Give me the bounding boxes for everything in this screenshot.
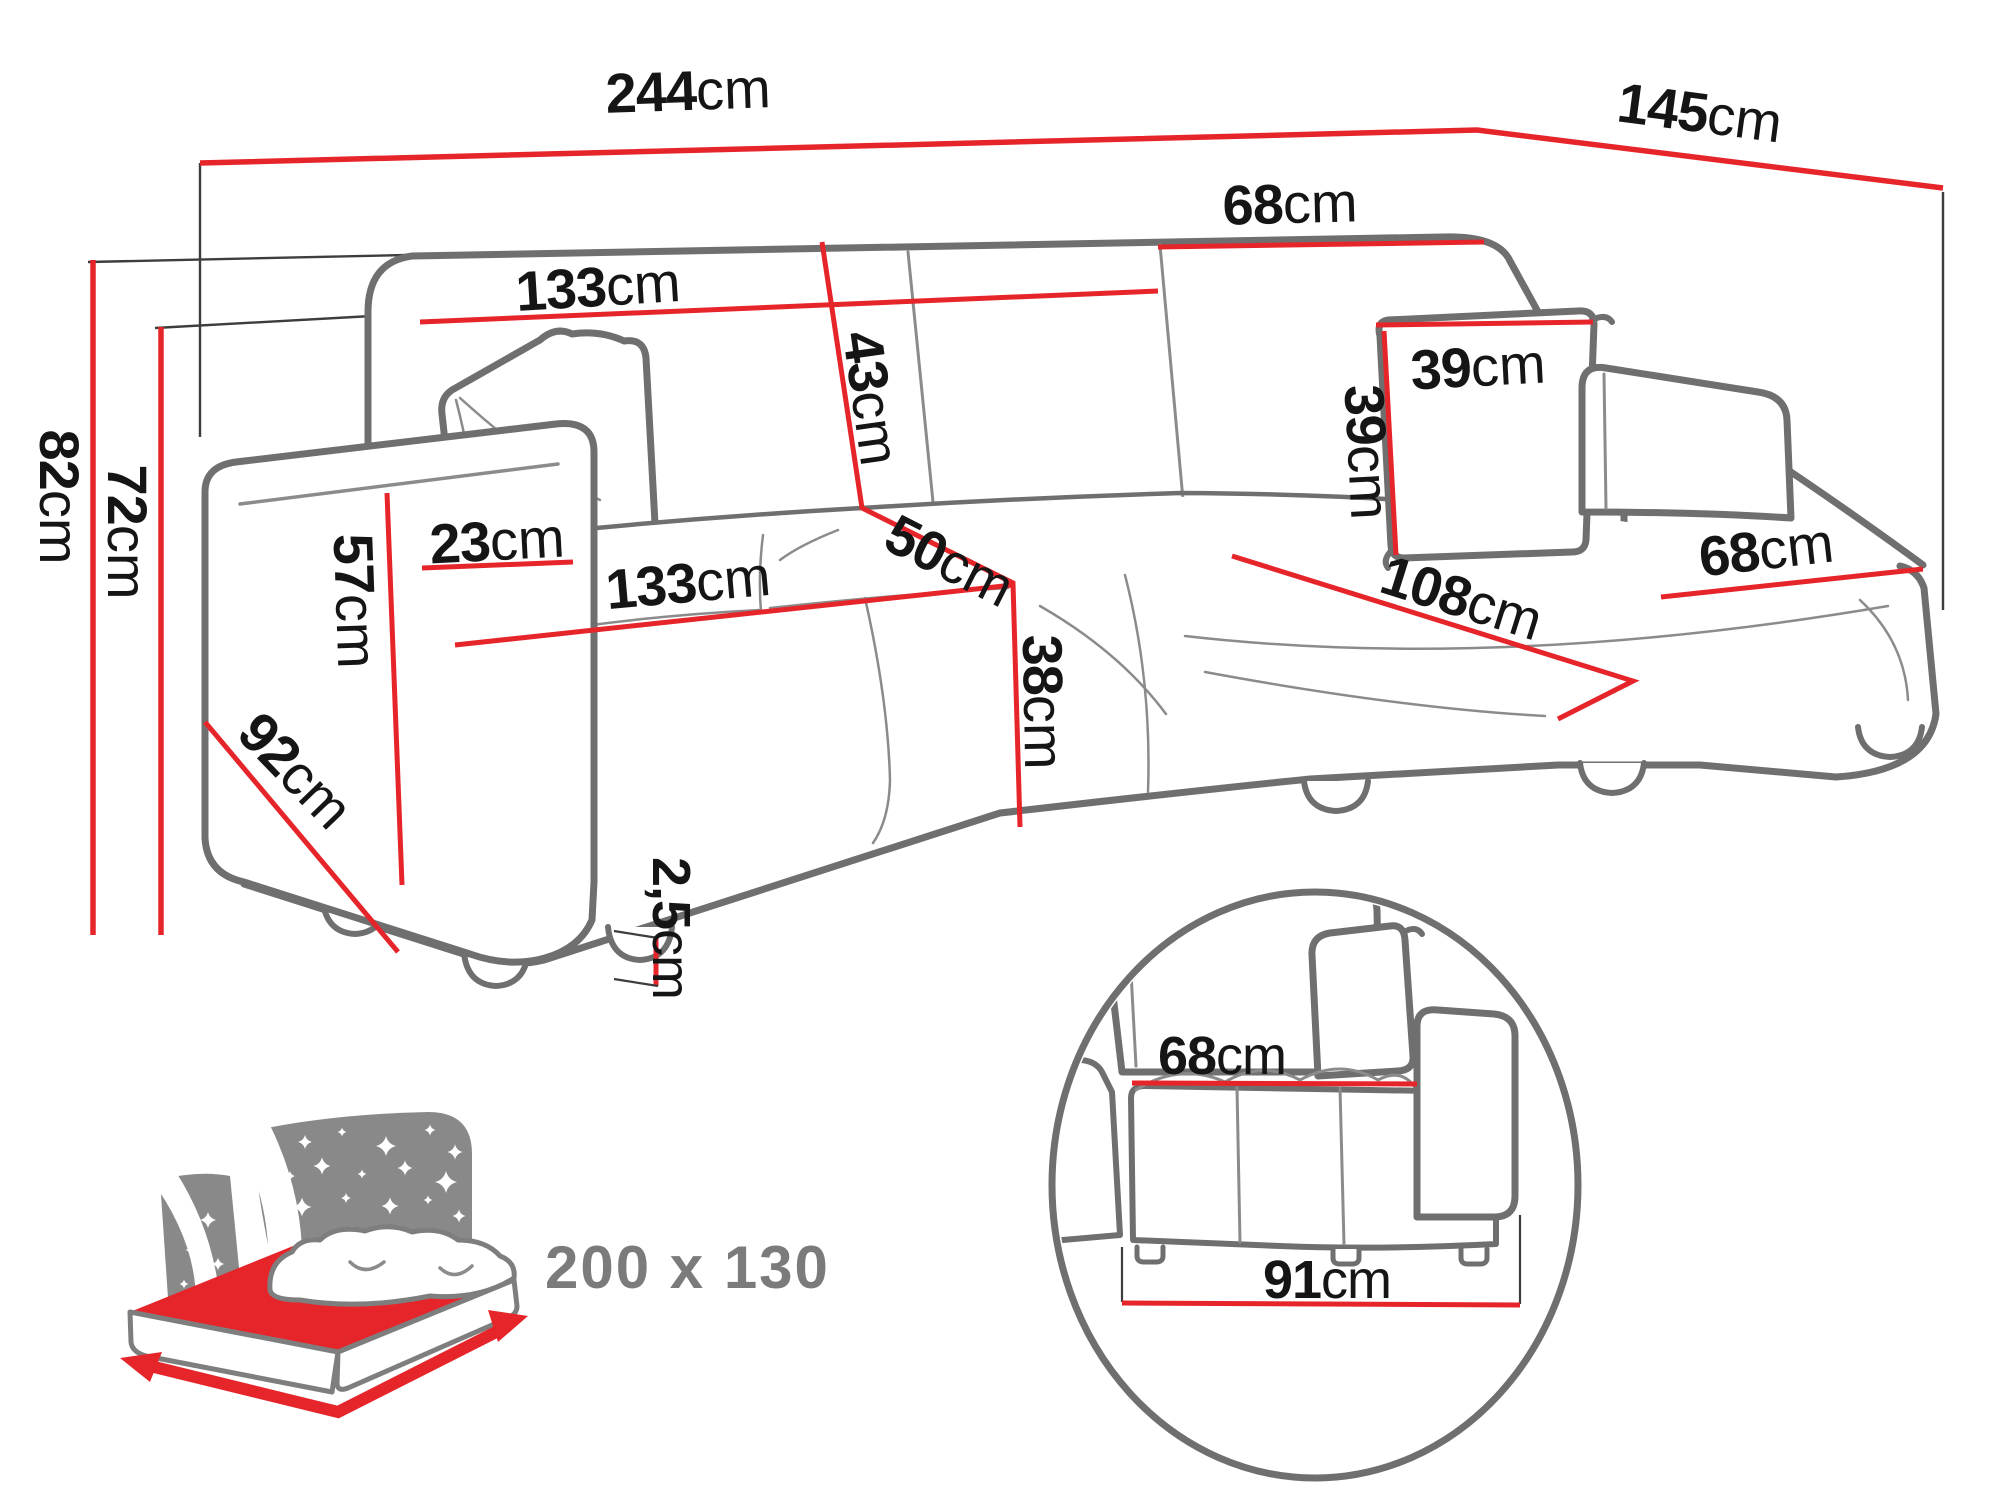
label-backrest-corner-width: 68cm [1222,170,1359,237]
label-total-width: 244cm [604,56,771,125]
diagram-svg: 244cm 145cm 68cm 133cm 43cm 50cm 39cm 39… [0,0,2000,1500]
duvet [270,1227,514,1304]
label-backrest-height: 72cm [97,465,160,600]
sofa-dimension-diagram: 244cm 145cm 68cm 133cm 43cm 50cm 39cm 39… [0,0,2000,1500]
inset-label-seat-width: 68cm [1158,1026,1286,1086]
label-armrest-height: 57cm [322,532,390,669]
sleeping-function-icon: 200 x 130 [120,1110,830,1412]
label-leg-height: 2,5cm [641,857,701,999]
label-backrest-width: 133cm [514,250,683,323]
label-total-height: 82cm [29,430,92,565]
label-pillow-height: 39cm [1333,383,1403,521]
sofa-drawing [205,237,1937,986]
label-total-depth: 145cm [1614,70,1786,154]
line-39-top [1376,322,1593,325]
label-pillow-width: 39cm [1409,331,1547,401]
label-armrest-width: 23cm [428,505,566,575]
label-seat-height: 38cm [1011,634,1076,770]
inset-label-base-depth: 91cm [1263,1250,1391,1310]
detail-inset: 68cm 91cm [1040,889,1578,1478]
sleeping-area-label: 200 x 130 [545,1234,830,1301]
